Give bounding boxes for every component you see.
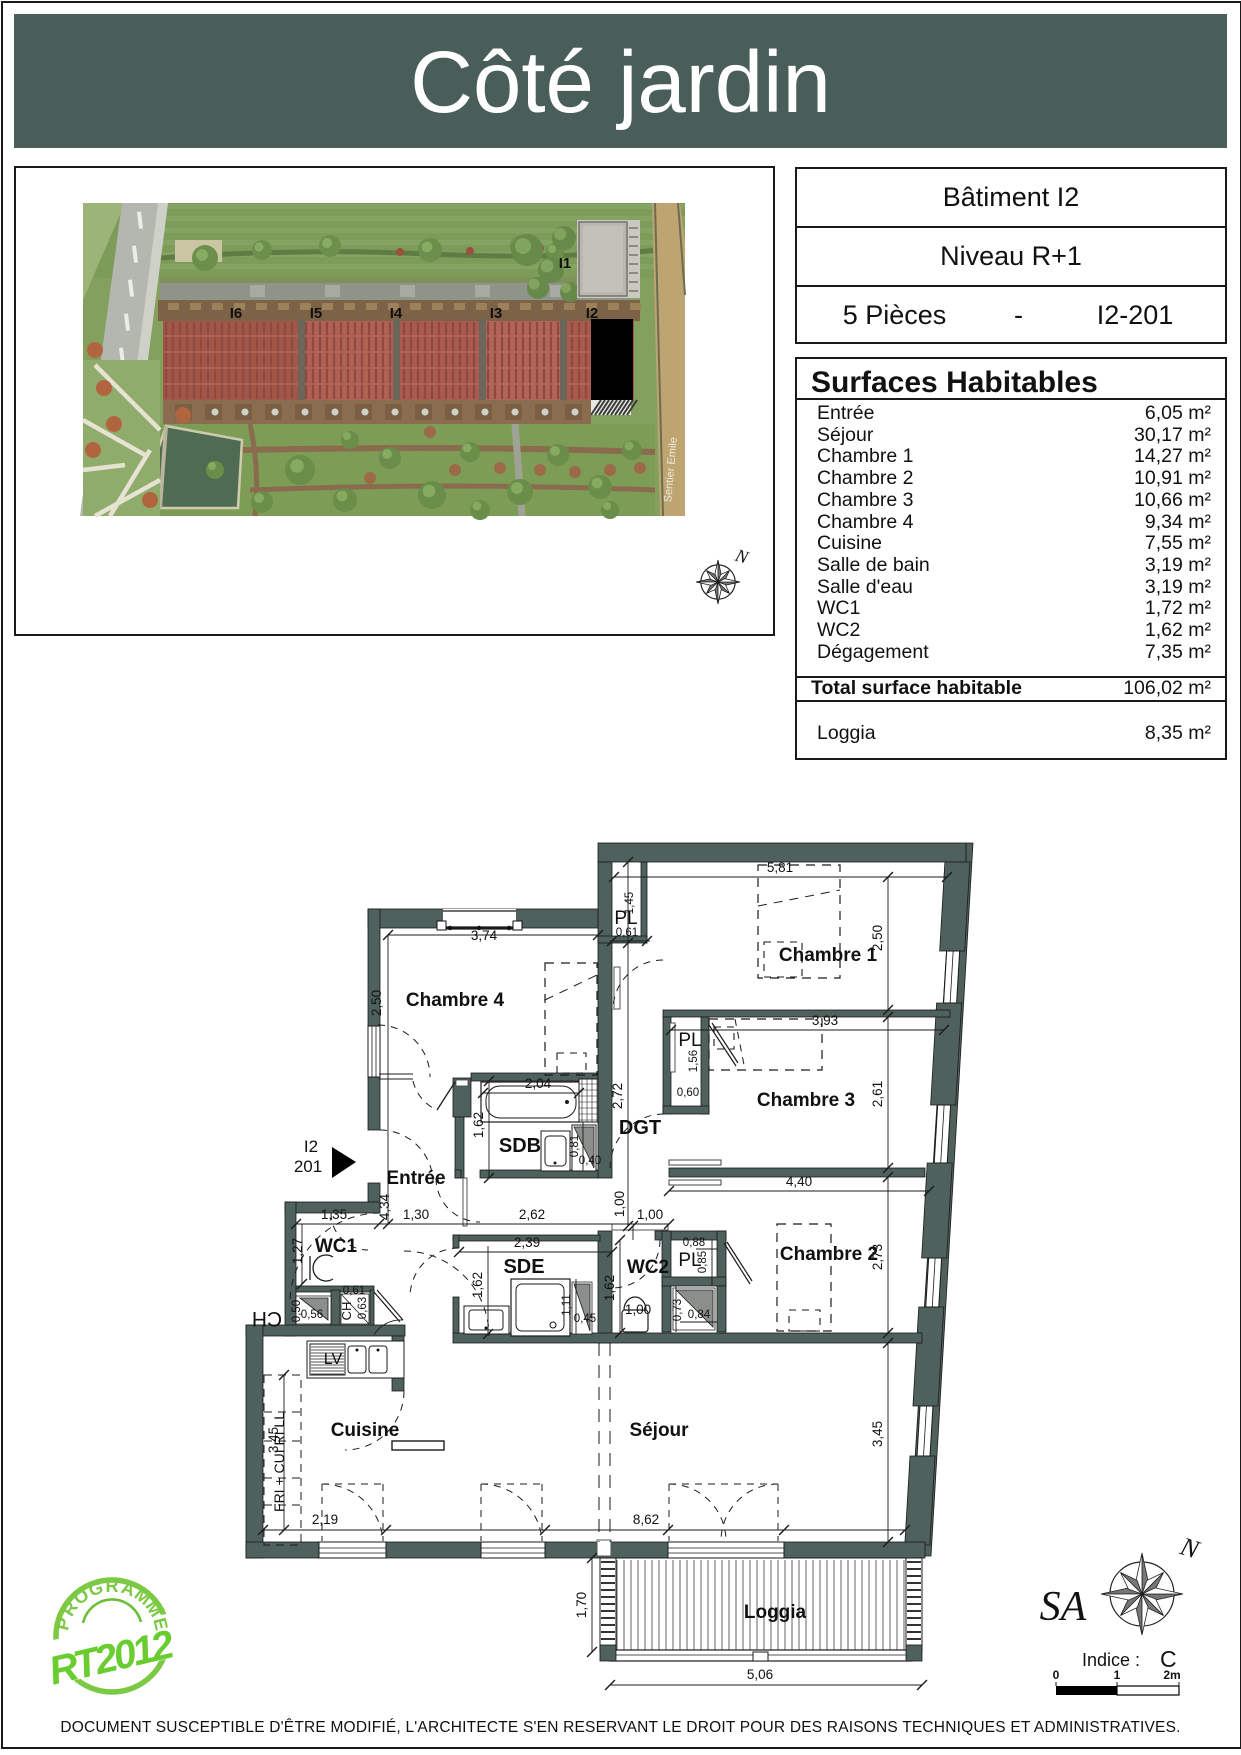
svg-text:I6: I6 <box>230 305 243 322</box>
svg-text:0,60: 0,60 <box>677 1087 699 1099</box>
svg-text:1,70: 1,70 <box>574 1592 589 1618</box>
svg-text:SA: SA <box>1040 1584 1087 1630</box>
svg-text:Chambre 4: Chambre 4 <box>406 990 505 1011</box>
svg-text:I2: I2 <box>304 1137 318 1156</box>
svg-text:5,06: 5,06 <box>747 1667 773 1682</box>
svg-text:Entrée: Entrée <box>386 1168 445 1189</box>
svg-text:1,00: 1,00 <box>625 1302 651 1317</box>
svg-text:0,81: 0,81 <box>569 1135 581 1157</box>
svg-text:Indice :: Indice : <box>1082 1650 1140 1670</box>
svg-text:PL: PL <box>678 1250 701 1271</box>
svg-text:I5: I5 <box>310 305 323 322</box>
svg-text:N: N <box>732 545 751 568</box>
svg-text:PL: PL <box>678 1030 701 1051</box>
svg-text:R: R <box>106 1576 119 1596</box>
svg-text:1,27: 1,27 <box>290 1238 305 1264</box>
svg-text:FRI + CUI RI LL: FRI + CUI RI LL <box>271 1412 287 1512</box>
svg-text:Séjour: Séjour <box>629 1420 689 1441</box>
svg-text:2m: 2m <box>1163 1668 1180 1682</box>
svg-text:3,45: 3,45 <box>870 1421 885 1447</box>
svg-text:4,40: 4,40 <box>786 1174 812 1189</box>
svg-text:0,40: 0,40 <box>579 1155 601 1167</box>
svg-text:SDE: SDE <box>503 1256 544 1278</box>
svg-text:0,63: 0,63 <box>357 1297 369 1319</box>
svg-text:0,56: 0,56 <box>301 1309 323 1321</box>
svg-text:2,50: 2,50 <box>369 990 384 1016</box>
svg-text:1,35: 1,35 <box>321 1207 347 1222</box>
svg-text:2,72: 2,72 <box>610 1083 625 1109</box>
svg-text:0,45: 0,45 <box>574 1313 596 1325</box>
svg-text:0,88: 0,88 <box>683 1237 705 1249</box>
svg-text:2,61: 2,61 <box>870 1081 885 1107</box>
svg-text:1,56: 1,56 <box>688 1050 700 1072</box>
svg-text:WC1: WC1 <box>315 1236 358 1257</box>
svg-text:2,62: 2,62 <box>519 1207 545 1222</box>
svg-text:1: 1 <box>1114 1668 1121 1682</box>
svg-text:DGT: DGT <box>619 1117 661 1139</box>
svg-text:CH: CH <box>252 1307 282 1330</box>
svg-text:I3: I3 <box>490 305 503 322</box>
svg-text:2,04: 2,04 <box>525 1076 552 1091</box>
svg-text:4,34: 4,34 <box>377 1193 392 1220</box>
svg-text:LV: LV <box>324 1351 343 1368</box>
svg-text:N: N <box>1176 1531 1204 1565</box>
svg-text:0,61: 0,61 <box>343 1285 365 1297</box>
svg-text:1,62: 1,62 <box>470 1272 485 1298</box>
svg-text:3,74: 3,74 <box>471 928 498 943</box>
svg-text:Chambre 3: Chambre 3 <box>757 1090 855 1111</box>
svg-text:Chambre 2: Chambre 2 <box>780 1244 878 1265</box>
svg-text:I4: I4 <box>390 305 403 322</box>
svg-text:0: 0 <box>1053 1668 1060 1682</box>
svg-text:2,19: 2,19 <box>312 1512 338 1527</box>
svg-text:PL: PL <box>614 908 637 929</box>
svg-text:1,00: 1,00 <box>637 1207 663 1222</box>
svg-text:I2: I2 <box>586 305 599 322</box>
svg-text:1,00: 1,00 <box>612 1191 627 1217</box>
svg-text:SDB: SDB <box>499 1135 541 1157</box>
svg-text:8,62: 8,62 <box>633 1512 659 1527</box>
svg-text:Chambre 1: Chambre 1 <box>779 945 878 966</box>
svg-text:1,62: 1,62 <box>602 1275 617 1301</box>
svg-text:CH: CH <box>339 1302 354 1321</box>
svg-text:5,81: 5,81 <box>767 860 793 875</box>
svg-text:0,73: 0,73 <box>672 1299 684 1321</box>
svg-text:Cuisine: Cuisine <box>331 1420 400 1441</box>
svg-text:WC2: WC2 <box>627 1257 669 1278</box>
svg-text:3,93: 3,93 <box>812 1013 838 1028</box>
svg-text:1,62: 1,62 <box>471 1112 486 1138</box>
svg-text:2,39: 2,39 <box>514 1235 540 1250</box>
svg-text:0,84: 0,84 <box>688 1309 711 1321</box>
svg-text:1,30: 1,30 <box>403 1207 429 1222</box>
svg-text:I1: I1 <box>559 255 572 272</box>
svg-text:201: 201 <box>294 1157 322 1176</box>
svg-text:1,11: 1,11 <box>561 1294 573 1316</box>
svg-text:Loggia: Loggia <box>744 1602 807 1623</box>
